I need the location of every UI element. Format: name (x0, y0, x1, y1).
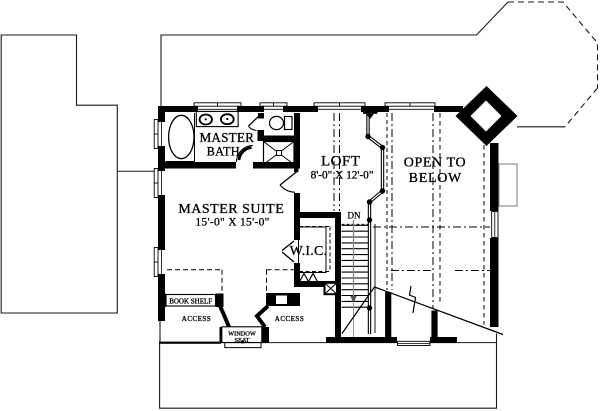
svg-text:LOFT: LOFT (321, 153, 361, 169)
svg-text:DN: DN (348, 211, 361, 221)
svg-text:15'-0" X 15'-0": 15'-0" X 15'-0" (195, 217, 269, 229)
svg-text:ACCESS: ACCESS (182, 315, 211, 323)
svg-text:BOOK SHELF: BOOK SHELF (169, 298, 212, 306)
svg-text:W.I.C.: W.I.C. (290, 244, 328, 259)
svg-text:8'-0" X 12'-0": 8'-0" X 12'-0" (311, 170, 374, 182)
svg-text:OPEN TO: OPEN TO (404, 156, 466, 171)
svg-text:MASTER SUITE: MASTER SUITE (178, 202, 284, 217)
svg-text:BATH: BATH (207, 145, 240, 159)
svg-text:MASTER: MASTER (199, 130, 254, 145)
svg-text:ACCESS: ACCESS (275, 315, 304, 323)
svg-text:BELOW: BELOW (409, 171, 462, 186)
